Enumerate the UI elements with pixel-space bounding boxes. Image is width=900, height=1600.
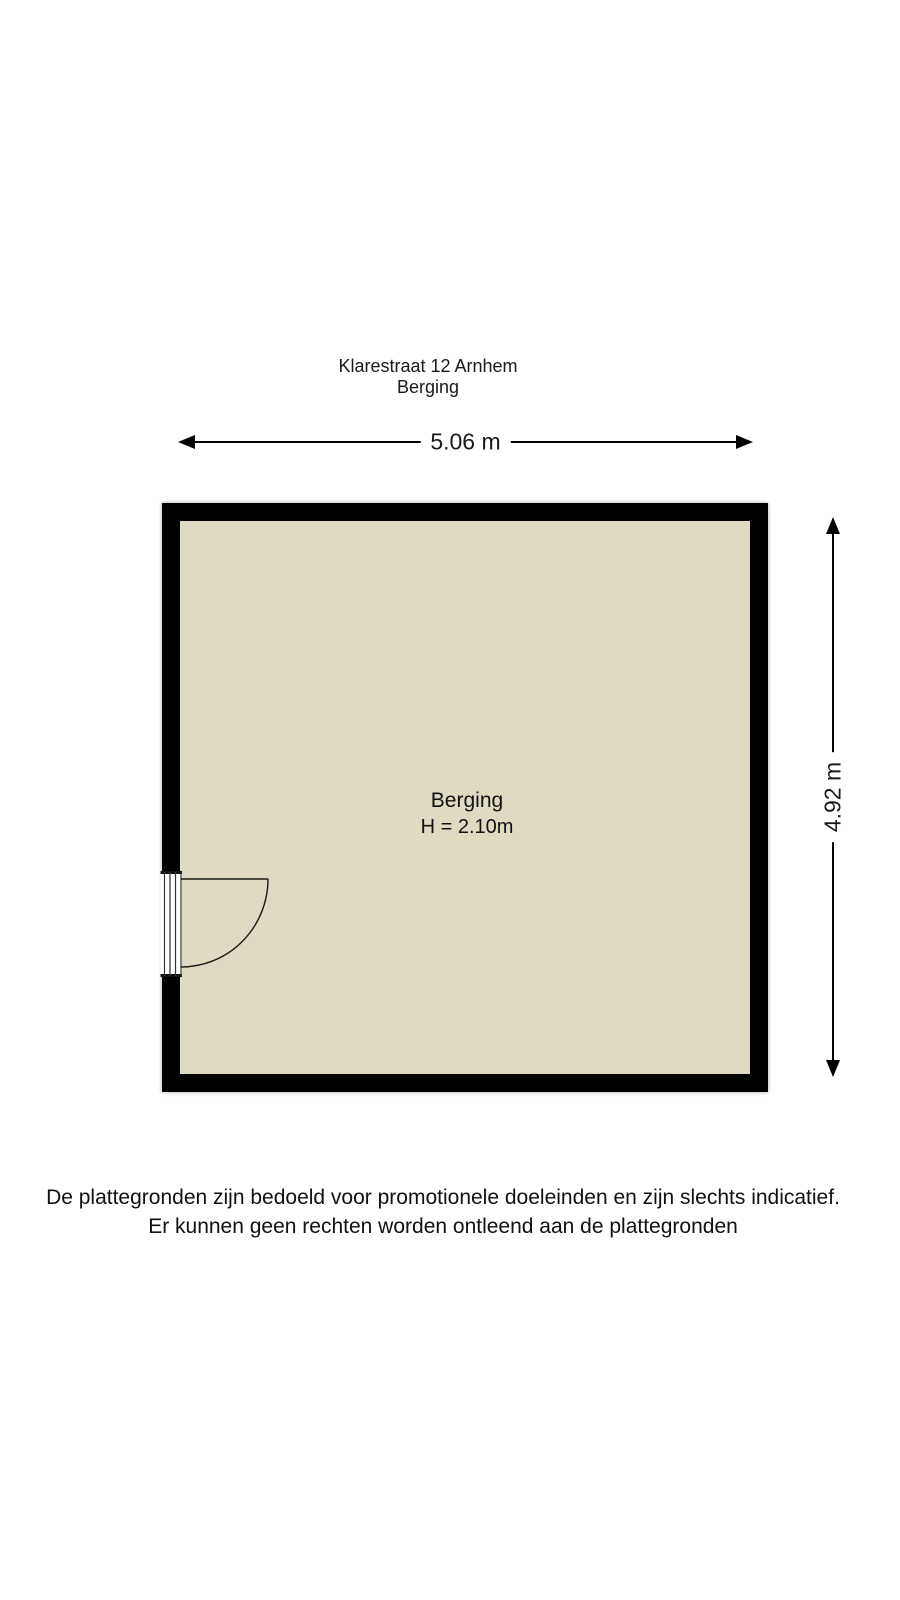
height-dimension-label: 4.92 m bbox=[820, 752, 847, 842]
arrow-down-icon bbox=[826, 1060, 840, 1077]
page-subtitle: Berging bbox=[338, 377, 517, 398]
room-label: Berging H = 2.10m bbox=[421, 788, 514, 840]
page-title: Klarestraat 12 Arnhem bbox=[338, 356, 517, 377]
room-name: Berging bbox=[421, 788, 514, 814]
arrow-right-icon bbox=[736, 435, 753, 449]
width-dimension-label: 5.06 m bbox=[420, 429, 510, 456]
header: Klarestraat 12 Arnhem Berging bbox=[338, 356, 517, 398]
room-ceiling-height: H = 2.10m bbox=[421, 814, 514, 840]
height-dimension: 4.92 m bbox=[820, 517, 846, 1077]
width-dimension: 5.06 m bbox=[178, 430, 753, 454]
arrow-up-icon bbox=[826, 517, 840, 534]
floorplan-page: Klarestraat 12 Arnhem Berging 5.06 m 4.9… bbox=[0, 0, 900, 1600]
arrow-left-icon bbox=[178, 435, 195, 449]
door-icon bbox=[150, 860, 310, 990]
door-swing-arc bbox=[181, 879, 268, 967]
disclaimer: De plattegronden zijn bedoeld voor promo… bbox=[0, 1183, 886, 1241]
disclaimer-line-1: De plattegronden zijn bedoeld voor promo… bbox=[0, 1183, 886, 1212]
door-opening bbox=[161, 871, 183, 977]
disclaimer-line-2: Er kunnen geen rechten worden ontleend a… bbox=[0, 1212, 886, 1241]
